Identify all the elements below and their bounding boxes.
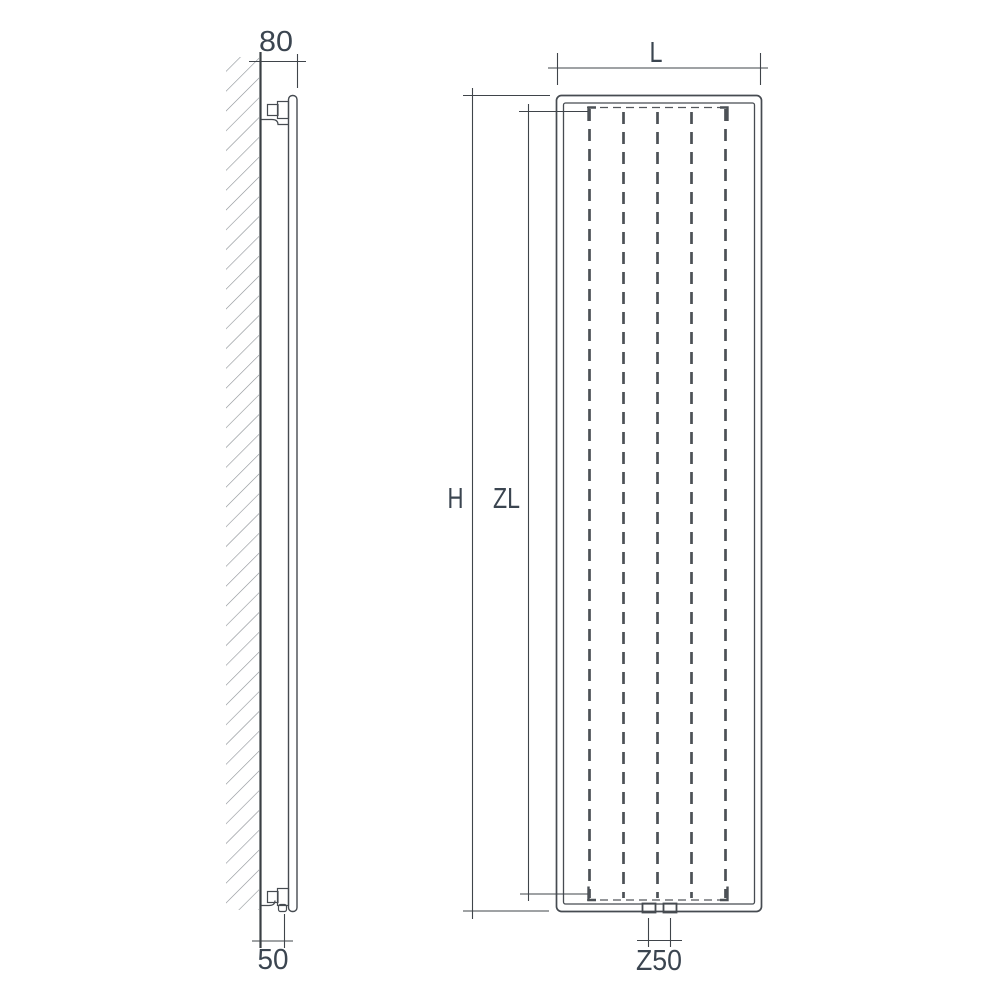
- dim-offset-50: 50: [252, 914, 293, 976]
- dim-ZL-label: ZL: [493, 483, 520, 515]
- dim-Z50-label: Z50: [636, 945, 682, 977]
- dim-L-label: L: [650, 37, 663, 69]
- bottom-bracket-body: [278, 889, 289, 906]
- top-bracket-flange: [262, 120, 289, 125]
- fin-corner-hook-bottom-left: [589, 887, 597, 901]
- dim-width-L: L: [548, 37, 768, 85]
- bottom-bracket-clip: [268, 892, 279, 903]
- dim-H-label: H: [448, 483, 464, 515]
- radiator-panel-side: [289, 96, 298, 912]
- fin-corner-hook-top-left: [589, 108, 597, 122]
- wall-hatch: [226, 57, 259, 910]
- fin-channels-dashed: [587, 108, 729, 901]
- dim-connection-Z50: Z50: [636, 918, 682, 977]
- radiator-inner-frame: [564, 103, 755, 904]
- bottom-bracket: [262, 889, 289, 912]
- radiator-dimension-diagram: 80 50: [0, 0, 1000, 1000]
- front-view: L H ZL Z50: [448, 37, 769, 977]
- top-bracket: [262, 102, 289, 125]
- side-view: 80 50: [226, 26, 306, 976]
- fin-corner-hook-bottom-right: [720, 887, 728, 901]
- dim-50-label: 50: [258, 944, 289, 976]
- dim-80-label: 80: [259, 26, 293, 58]
- top-bracket-body: [278, 102, 289, 119]
- fin-corner-hook-top-right: [720, 108, 728, 122]
- dim-inner-height-ZL: ZL: [493, 104, 588, 901]
- radiator-outer-frame: [557, 96, 762, 912]
- top-bracket-clip: [268, 105, 279, 116]
